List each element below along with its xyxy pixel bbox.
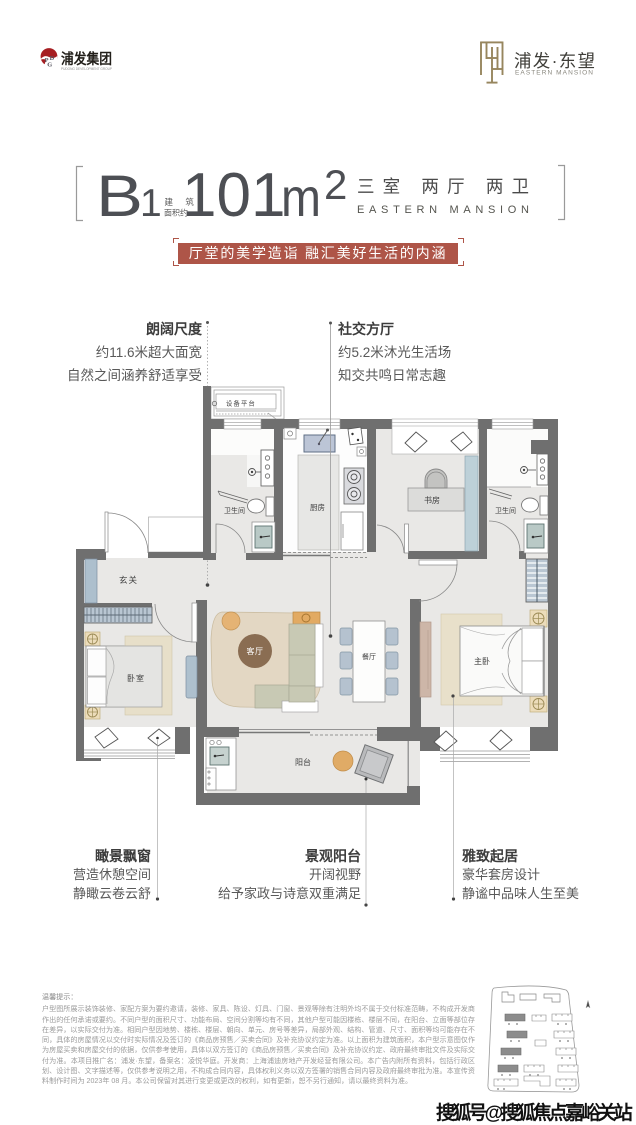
svg-text:卧室: 卧室 bbox=[127, 673, 145, 683]
svg-text:阳台: 阳台 bbox=[295, 757, 311, 767]
svg-text:主卧: 主卧 bbox=[474, 656, 490, 666]
svg-text:玄关: 玄关 bbox=[119, 575, 138, 585]
svg-text:卫生间: 卫生间 bbox=[224, 506, 245, 515]
svg-text:厨房: 厨房 bbox=[310, 502, 325, 512]
svg-text:客厅: 客厅 bbox=[247, 646, 264, 656]
svg-text:餐厅: 餐厅 bbox=[362, 652, 376, 661]
svg-text:书房: 书房 bbox=[424, 495, 440, 505]
svg-text:卫生间: 卫生间 bbox=[495, 506, 516, 515]
svg-text:设备平台: 设备平台 bbox=[226, 399, 256, 408]
